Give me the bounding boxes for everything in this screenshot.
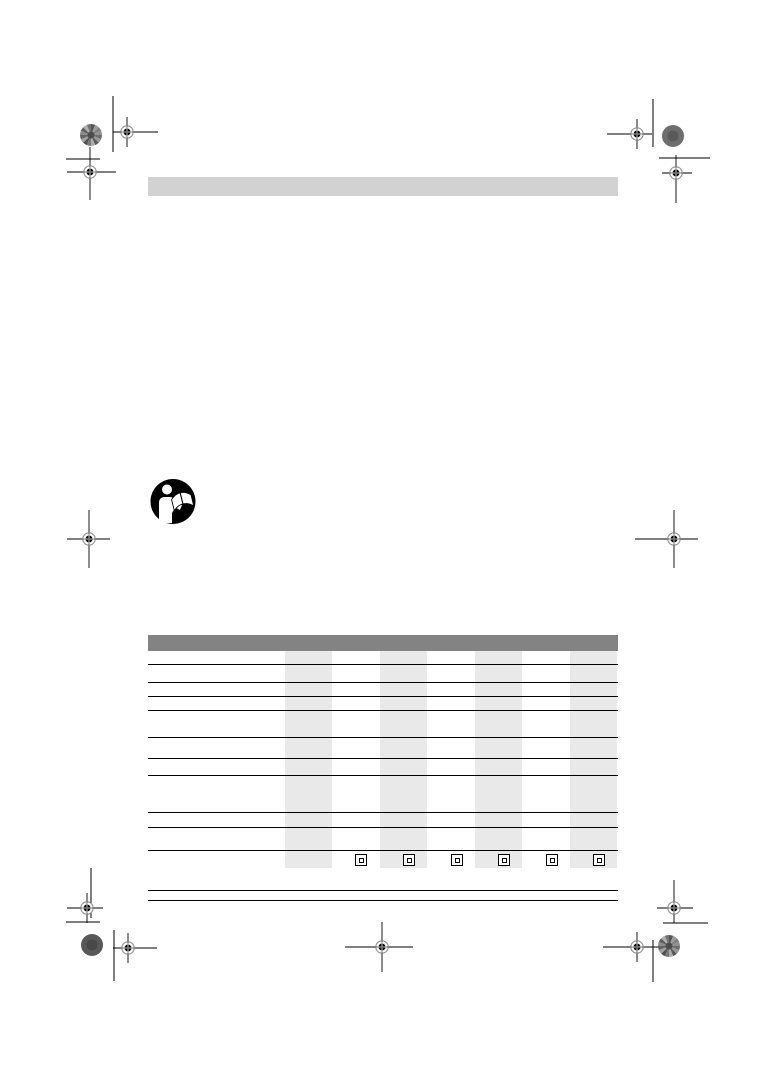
footer-divider-line — [148, 890, 618, 891]
footer-divider-line — [148, 900, 618, 901]
manual-page — [0, 0, 765, 1082]
footer-divider-lines — [0, 0, 765, 1082]
